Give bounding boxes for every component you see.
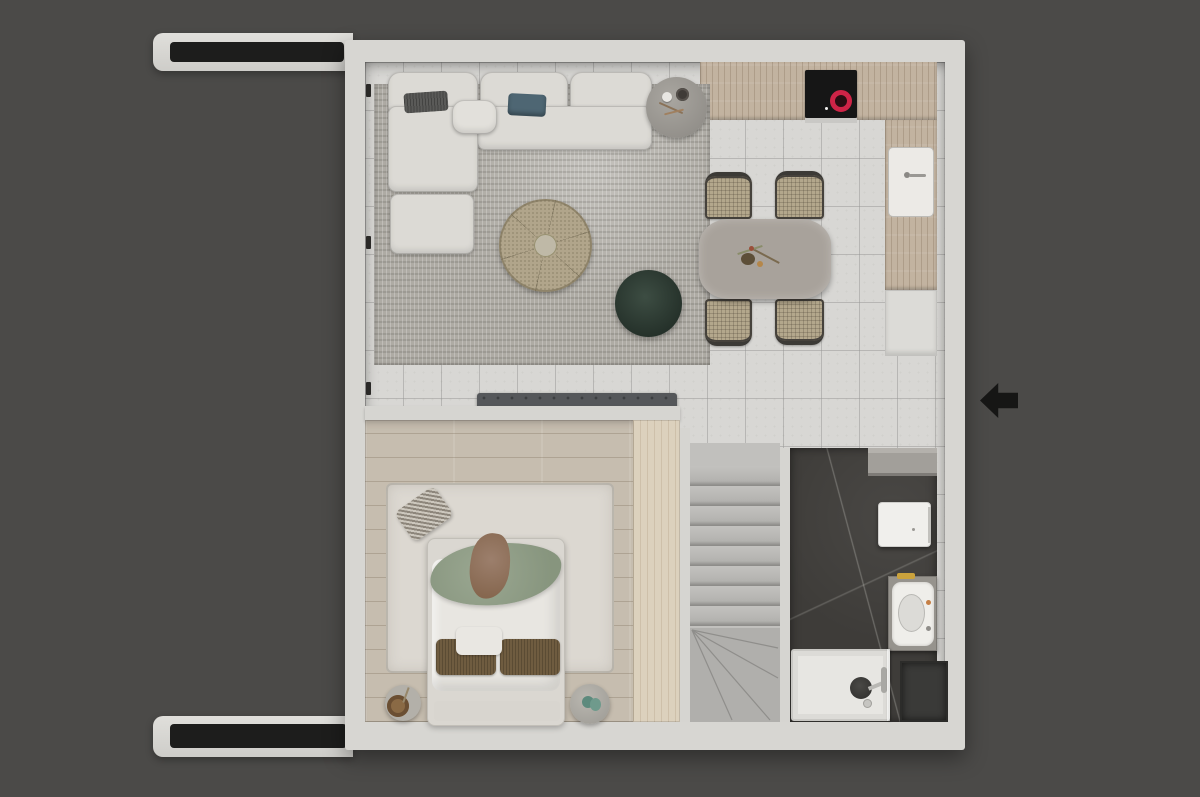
basin-tap bbox=[926, 600, 931, 605]
centerpiece-bowl bbox=[741, 253, 755, 265]
teal-throw-pillow bbox=[507, 93, 546, 117]
cup bbox=[662, 92, 672, 102]
entry-arrow-icon bbox=[980, 383, 1018, 418]
sofa-ottoman bbox=[390, 194, 474, 254]
stair-wall-left bbox=[680, 428, 690, 722]
cooktop-indicator-dot bbox=[825, 107, 828, 110]
staircase bbox=[690, 443, 780, 722]
white-pillow-small bbox=[456, 627, 502, 655]
basin-tap bbox=[926, 626, 931, 631]
washbasin bbox=[892, 582, 934, 646]
window-frame-tick bbox=[366, 382, 371, 395]
cabinet-knob bbox=[912, 528, 915, 531]
bathroom-shelf bbox=[868, 448, 937, 476]
floor-drain bbox=[863, 699, 872, 708]
vanity-stand bbox=[888, 576, 937, 651]
kitchen-base-cabinet bbox=[885, 290, 937, 356]
sofa-small-cushion bbox=[452, 100, 497, 134]
shower-tray bbox=[791, 649, 890, 721]
headboard-base bbox=[434, 701, 560, 721]
kitchen-sink bbox=[888, 147, 934, 217]
faucet-arm bbox=[909, 174, 926, 177]
brown-pillow-right bbox=[500, 639, 560, 675]
bowl bbox=[676, 88, 689, 101]
stair-wall-right bbox=[780, 448, 790, 722]
cooktop-front-lip bbox=[805, 118, 857, 123]
utility-recess bbox=[900, 661, 948, 722]
sofa-seat bbox=[477, 106, 652, 150]
centerpiece-fruit bbox=[749, 246, 754, 251]
window-frame-tick bbox=[366, 236, 371, 249]
dining-chair-top-right bbox=[775, 171, 824, 219]
burner-ring bbox=[830, 90, 852, 112]
wall-cavity-bottom bbox=[170, 724, 347, 748]
side-table bbox=[646, 77, 707, 138]
decor-item-teal bbox=[590, 698, 601, 711]
dining-chair-top-left bbox=[705, 172, 752, 219]
stair-treads bbox=[690, 466, 780, 628]
bed-frame bbox=[427, 538, 565, 726]
floor-plan-canvas bbox=[0, 0, 1200, 797]
wall-cavity-top bbox=[170, 42, 344, 62]
dining-chair-bottom-left bbox=[705, 299, 752, 346]
nightstand-left bbox=[385, 685, 421, 721]
dark-throw-pillow bbox=[403, 90, 448, 113]
cabinet-side-rail bbox=[928, 507, 931, 543]
basin-bowl bbox=[898, 594, 925, 632]
centerpiece-fruit bbox=[757, 261, 763, 267]
bedroom-partition-wall bbox=[365, 406, 680, 420]
winder-steps bbox=[690, 628, 780, 722]
stair-landing bbox=[690, 443, 780, 467]
bathroom-wall-cabinet bbox=[878, 502, 931, 547]
shower-glass-panel bbox=[887, 649, 890, 721]
induction-cooktop bbox=[805, 70, 857, 118]
nightstand-right bbox=[570, 684, 610, 724]
dining-table bbox=[699, 219, 831, 299]
window-frame-tick bbox=[366, 84, 371, 97]
wardrobe bbox=[633, 420, 680, 722]
dining-chair-bottom-right bbox=[775, 299, 824, 345]
coffee-table-center-disc bbox=[534, 234, 557, 257]
coffee-table bbox=[499, 199, 592, 292]
green-pouf bbox=[615, 270, 682, 337]
soap-bar-gold bbox=[897, 573, 915, 579]
